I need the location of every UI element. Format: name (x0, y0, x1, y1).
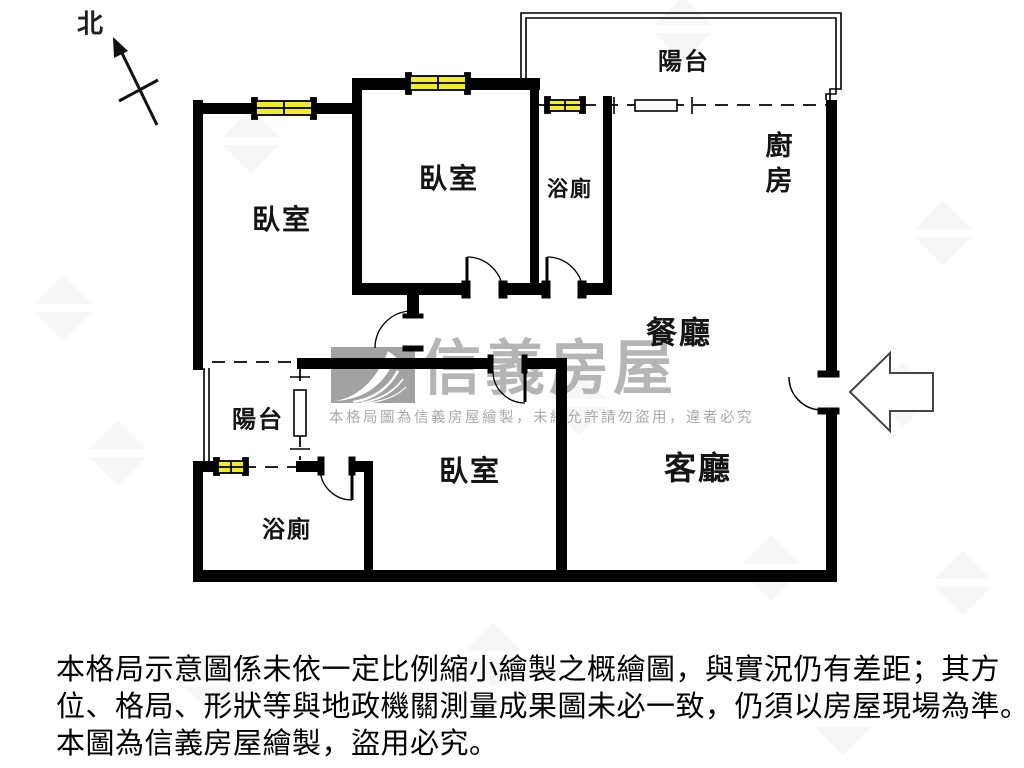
room-label-balcony-top: 陽台 (658, 42, 710, 77)
bathroom-bottom-door (318, 457, 355, 500)
floorplan-page: 信義房屋 本格局圖為信義房屋繪製，未經允許請勿盜用，違者必究 (0, 0, 1024, 768)
north-label: 北 (77, 4, 103, 41)
north-arrow-icon (113, 37, 158, 125)
bedroom-left-door (375, 311, 423, 351)
walls (193, 78, 837, 582)
white-windows (290, 97, 692, 449)
disclaimer-line: 本圖為信義房屋繪製，盜用必究。 (56, 726, 1024, 763)
disclaimer-text: 本格局示意圖係未依一定比例縮小繪製之概繪圖，與實況仍有差距；其方 位、格局、形狀… (56, 652, 1024, 763)
room-label-bedroom-middle: 臥室 (419, 157, 479, 197)
room-label-dining: 餐廳 (646, 308, 712, 353)
entrance-door (789, 371, 839, 414)
entrance-arrow-icon (850, 353, 933, 431)
room-label-bathroom-top: 浴廁 (547, 173, 593, 203)
room-label-bedroom-bottom: 臥室 (439, 448, 501, 490)
room-label-kitchen: 廚房 (758, 131, 797, 201)
room-label-balcony-left: 陽台 (232, 400, 284, 435)
disclaimer-line: 位、格局、形狀等與地政機關測量成果圖未必一致，仍須以房屋現場為準。 (56, 689, 1024, 726)
room-label-bedroom-left: 臥室 (252, 198, 312, 238)
room-label-bathroom-bottom: 浴廁 (262, 510, 312, 544)
bedroom-middle-door (462, 257, 507, 298)
bathroom-top-door (542, 257, 586, 298)
disclaimer-line: 本格局示意圖係未依一定比例縮小繪製之概繪圖，與實況仍有差距；其方 (56, 652, 1024, 689)
room-label-living: 客廳 (664, 443, 732, 489)
bedroom-bottom-door (488, 355, 527, 403)
